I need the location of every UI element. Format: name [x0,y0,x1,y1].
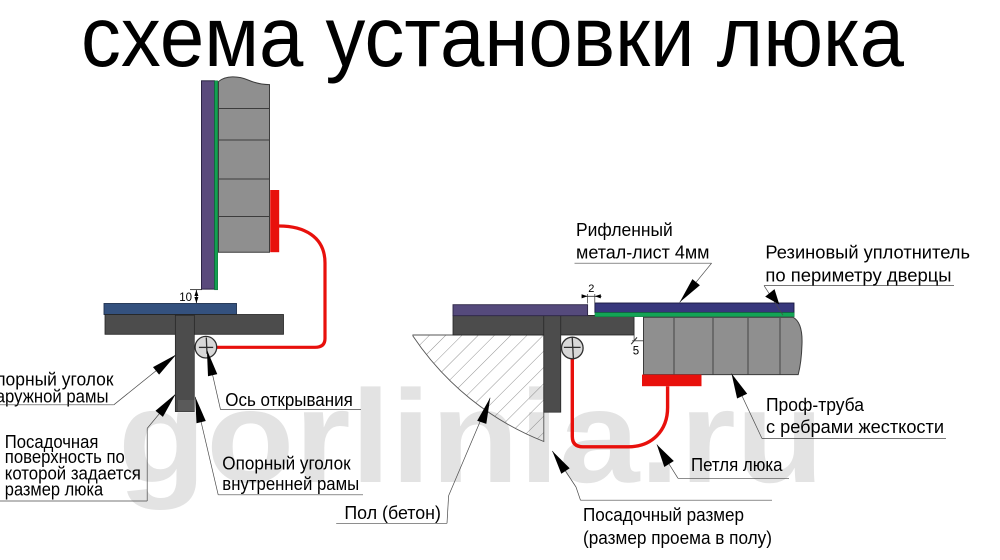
svg-text:(размер проема в полу): (размер проема в полу) [583,527,772,548]
svg-text:5: 5 [633,346,639,358]
svg-text:Опорный уголок: Опорный уголок [222,453,351,474]
svg-text:по периметру дверцы: по периметру дверцы [765,265,951,286]
svg-text:Пол (бетон): Пол (бетон) [344,502,441,523]
svg-text:схема установки люка: схема установки люка [81,0,905,85]
svg-text:Петля люка: Петля люка [691,454,783,475]
svg-text:2: 2 [588,283,594,295]
svg-text:метал-лист 4мм: метал-лист 4мм [576,242,710,263]
svg-text:Ось открывания: Ось открывания [225,389,352,410]
svg-text:Проф-труба: Проф-труба [766,394,865,415]
svg-text:внутренней рамы: внутренней рамы [222,473,359,494]
svg-text:10: 10 [179,292,192,304]
svg-text:размер люка: размер люка [5,478,104,499]
svg-text:Резиновый уплотнитель: Резиновый уплотнитель [765,242,970,263]
svg-text:с ребрами жесткости: с ребрами жесткости [766,416,944,437]
svg-text:наружной рамы: наружной рамы [0,386,109,407]
svg-text:Рифленный: Рифленный [576,219,673,240]
svg-text:Посадочный размер: Посадочный размер [583,504,744,525]
